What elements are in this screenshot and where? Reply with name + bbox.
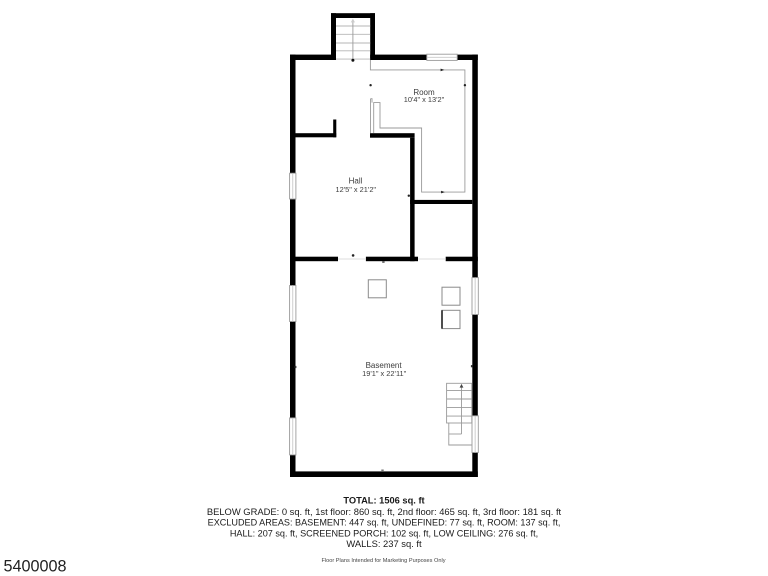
svg-text:10'4" x 13'2": 10'4" x 13'2" xyxy=(404,95,445,104)
svg-text:12'5" x 21'2": 12'5" x 21'2" xyxy=(336,185,377,194)
svg-text:5400008: 5400008 xyxy=(4,558,67,576)
svg-text:WALLS: 237 sq. ft: WALLS: 237 sq. ft xyxy=(346,538,422,549)
svg-text:BELOW GRADE: 0 sq. ft, 1st flo: BELOW GRADE: 0 sq. ft, 1st floor: 860 sq… xyxy=(207,506,562,517)
svg-text:19'1" x 22'11": 19'1" x 22'11" xyxy=(362,369,406,378)
svg-text:EXCLUDED AREAS: BASEMENT: 447: EXCLUDED AREAS: BASEMENT: 447 sq. ft, UN… xyxy=(208,518,561,528)
svg-text:Floor Plans Intended for Marke: Floor Plans Intended for Marketing Purpo… xyxy=(321,558,445,564)
svg-text:HALL: 207 sq. ft, SCREENED POR: HALL: 207 sq. ft, SCREENED PORCH: 102 sq… xyxy=(230,529,538,539)
svg-text:TOTAL: 1506 sq. ft: TOTAL: 1506 sq. ft xyxy=(343,495,424,505)
